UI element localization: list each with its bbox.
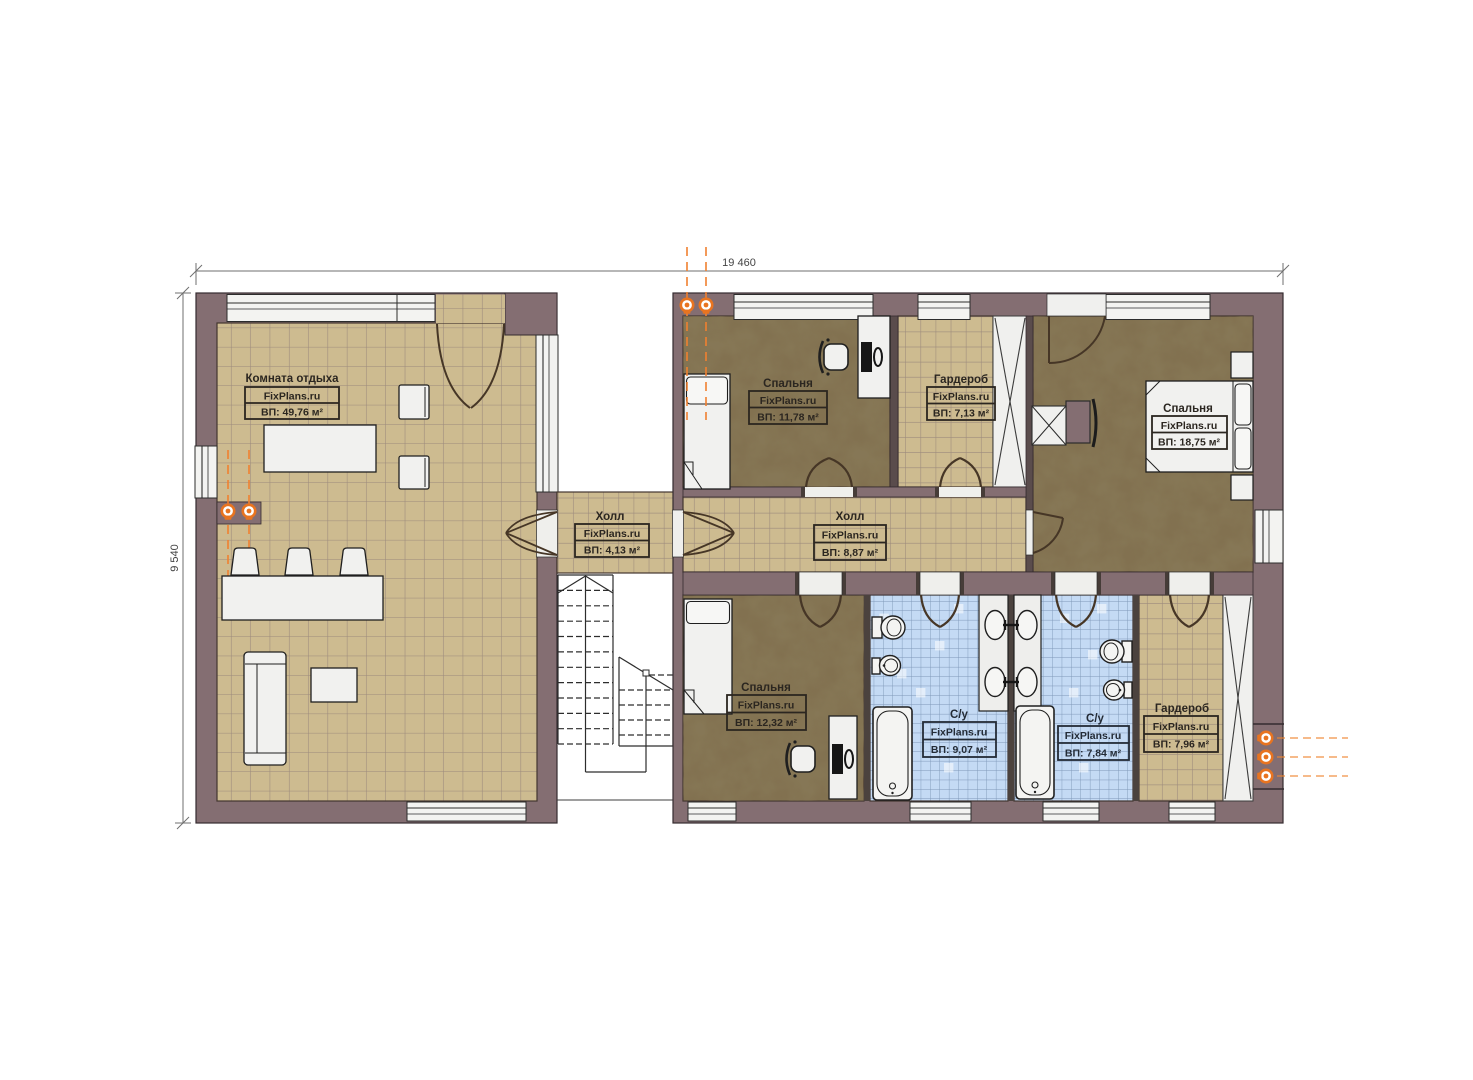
svg-text:FixPlans.ru: FixPlans.ru	[1153, 721, 1210, 733]
svg-text:FixPlans.ru: FixPlans.ru	[933, 391, 990, 403]
svg-text:ВП: 11,78 м²: ВП: 11,78 м²	[757, 412, 819, 424]
svg-text:ВП: 8,87 м²: ВП: 8,87 м²	[822, 547, 879, 559]
svg-text:ВП: 12,32 м²: ВП: 12,32 м²	[735, 717, 798, 729]
svg-text:Гардероб: Гардероб	[1155, 703, 1209, 715]
svg-text:ВП: 49,76 м²: ВП: 49,76 м²	[261, 407, 324, 419]
svg-text:FixPlans.ru: FixPlans.ru	[1161, 420, 1218, 432]
svg-text:FixPlans.ru: FixPlans.ru	[931, 727, 988, 739]
svg-text:Спальня: Спальня	[763, 378, 813, 390]
svg-text:Комната отдыха: Комната отдыха	[245, 373, 339, 385]
svg-text:С/у: С/у	[950, 709, 969, 721]
svg-text:ВП: 7,84 м²: ВП: 7,84 м²	[1065, 748, 1122, 760]
svg-text:19 460: 19 460	[722, 257, 756, 269]
svg-text:FixPlans.ru: FixPlans.ru	[584, 528, 641, 540]
svg-text:Спальня: Спальня	[741, 682, 791, 694]
svg-text:ВП: 18,75 м²: ВП: 18,75 м²	[1158, 437, 1221, 449]
svg-text:FixPlans.ru: FixPlans.ru	[822, 530, 879, 542]
svg-text:FixPlans.ru: FixPlans.ru	[264, 391, 321, 403]
svg-text:ВП: 7,13 м²: ВП: 7,13 м²	[933, 408, 990, 420]
svg-text:Холл: Холл	[836, 511, 865, 523]
svg-text:Холл: Холл	[596, 511, 625, 523]
svg-text:9 540: 9 540	[169, 544, 181, 572]
svg-text:Спальня: Спальня	[1163, 403, 1213, 415]
svg-text:ВП: 7,96 м²: ВП: 7,96 м²	[1153, 739, 1210, 751]
svg-text:FixPlans.ru: FixPlans.ru	[760, 395, 817, 407]
svg-text:ВП: 4,13 м²: ВП: 4,13 м²	[584, 545, 641, 557]
svg-text:Гардероб: Гардероб	[934, 374, 988, 386]
svg-text:С/у: С/у	[1086, 713, 1105, 725]
svg-text:FixPlans.ru: FixPlans.ru	[1065, 730, 1122, 742]
svg-text:ВП: 9,07 м²: ВП: 9,07 м²	[931, 744, 988, 756]
svg-text:FixPlans.ru: FixPlans.ru	[738, 700, 795, 712]
